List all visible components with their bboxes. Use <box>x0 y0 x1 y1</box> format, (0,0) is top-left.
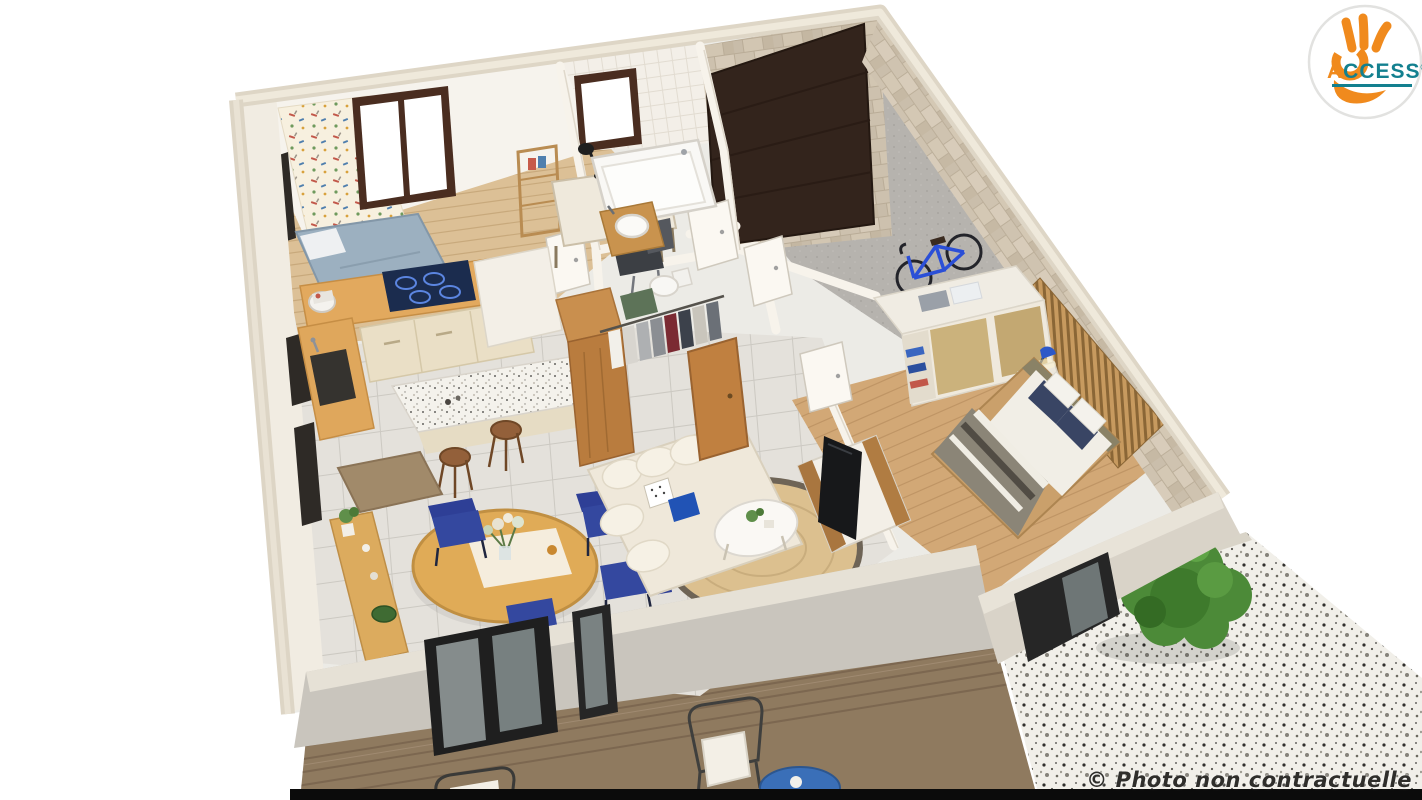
tall-cabinet <box>474 247 562 347</box>
sliding-glass-door <box>424 616 558 756</box>
logo-underline <box>1332 84 1412 87</box>
vessel-sink <box>616 215 648 237</box>
tv <box>818 436 862 540</box>
sink-counter <box>600 202 664 256</box>
open-wood-door <box>688 338 748 460</box>
copyright-notice: © Photo non contractuelle <box>1086 768 1412 792</box>
bedroom-door <box>800 342 852 412</box>
bathroom-window <box>574 68 642 152</box>
logo-wordmark: ACCESS® <box>1327 60 1422 83</box>
floorplan-svg: ACCESS® <box>0 0 1422 800</box>
floorplan-render: ACCESS® © Photo non contractuelle <box>0 0 1422 800</box>
access-logo: ACCESS® <box>1309 6 1422 118</box>
kids-window <box>352 86 456 210</box>
